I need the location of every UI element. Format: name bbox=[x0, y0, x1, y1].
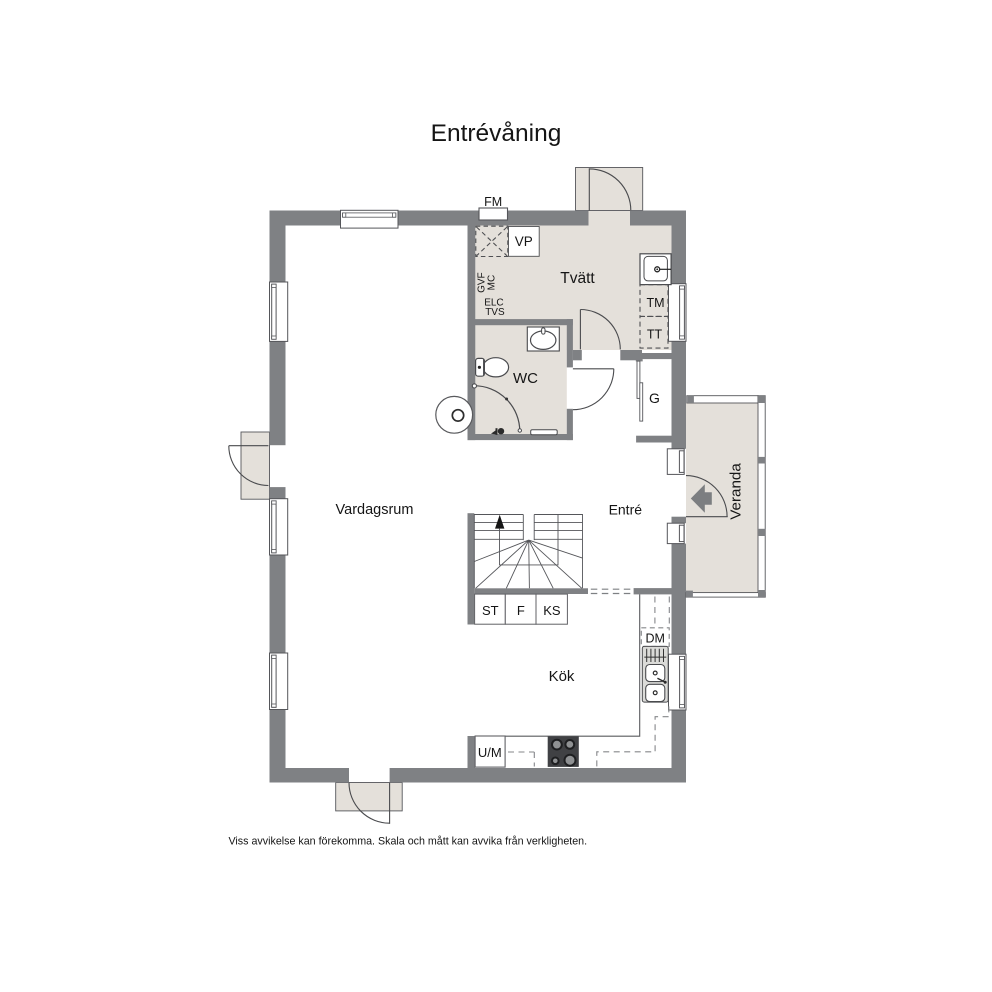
svg-text:MC: MC bbox=[487, 275, 498, 291]
svg-text:Entrévåning: Entrévåning bbox=[431, 120, 562, 147]
svg-text:VP: VP bbox=[515, 234, 533, 249]
svg-text:FM: FM bbox=[484, 195, 502, 209]
svg-text:TT: TT bbox=[647, 327, 663, 341]
svg-text:Vardagsrum: Vardagsrum bbox=[336, 502, 414, 518]
svg-text:F: F bbox=[517, 603, 525, 618]
svg-text:ST: ST bbox=[482, 603, 499, 618]
svg-text:G: G bbox=[649, 390, 660, 406]
svg-text:TM: TM bbox=[646, 296, 664, 310]
svg-text:U/M: U/M bbox=[478, 745, 502, 760]
svg-text:KS: KS bbox=[543, 603, 561, 618]
svg-text:WC: WC bbox=[513, 370, 538, 387]
svg-text:Tvätt: Tvätt bbox=[560, 270, 595, 287]
svg-text:DM: DM bbox=[645, 632, 664, 646]
svg-text:Entré: Entré bbox=[609, 502, 643, 518]
svg-text:Veranda: Veranda bbox=[727, 463, 744, 520]
svg-text:Kök: Kök bbox=[549, 668, 575, 685]
svg-text:Viss avvikelse kan förekomma.: Viss avvikelse kan förekomma. Skala och … bbox=[229, 836, 588, 848]
svg-text:TVS: TVS bbox=[485, 307, 505, 318]
